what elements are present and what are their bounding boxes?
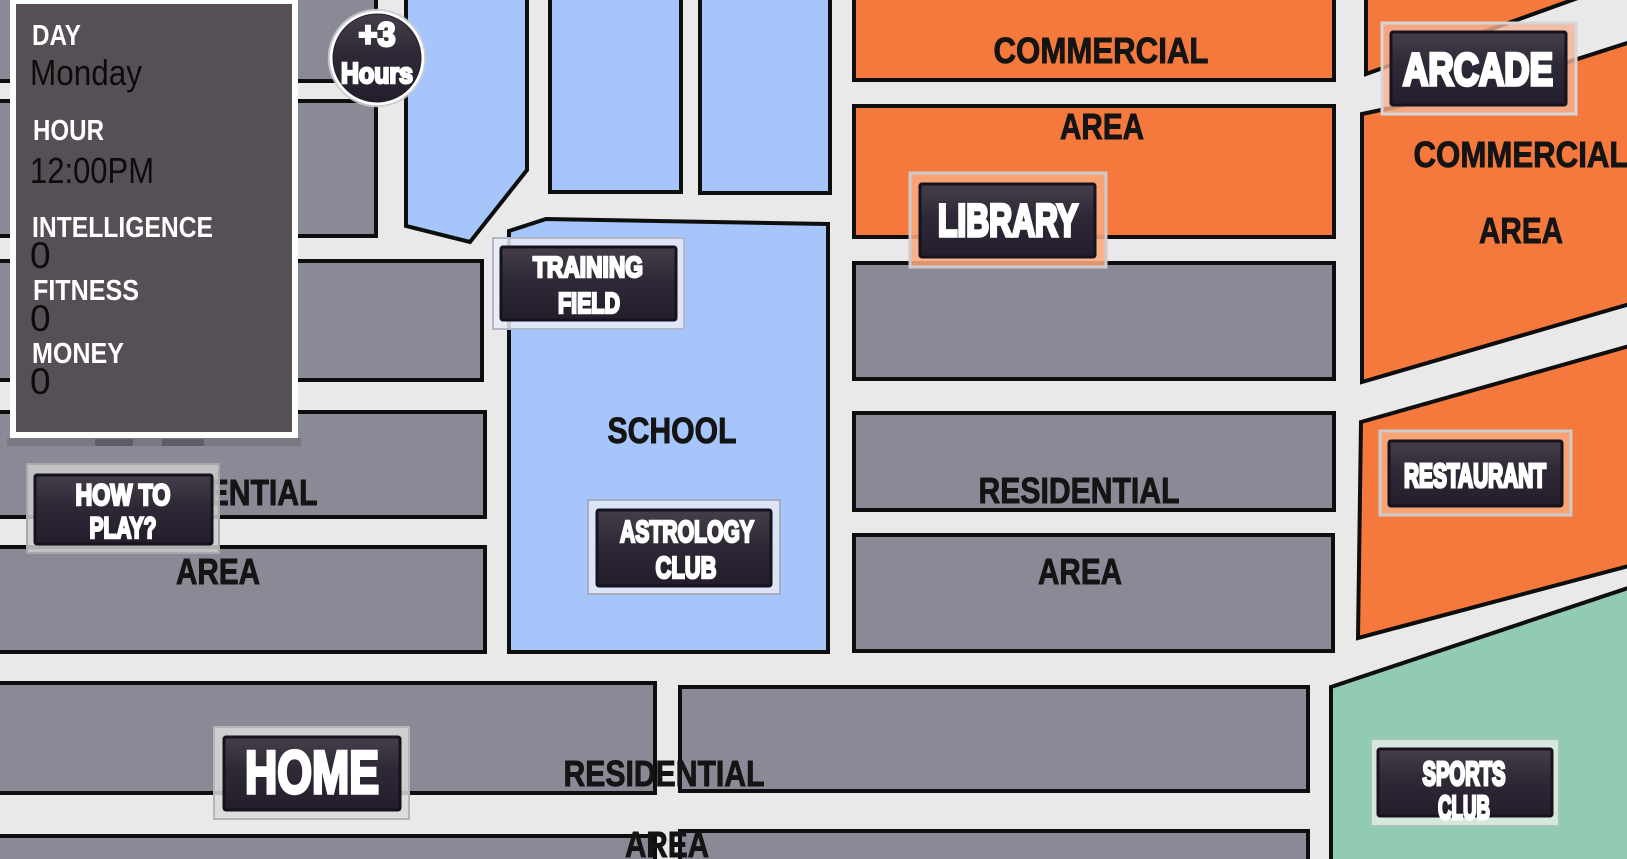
svg-text:CLUB: CLUB	[1438, 789, 1490, 826]
svg-text:+3: +3	[359, 16, 396, 54]
svg-text:COMMERCIAL: COMMERCIAL	[994, 30, 1209, 71]
svg-text:AREA: AREA	[625, 824, 709, 859]
svg-text:RESIDENTIAL: RESIDENTIAL	[564, 753, 765, 794]
svg-text:ASTROLOGY: ASTROLOGY	[620, 514, 754, 549]
svg-text:0: 0	[30, 298, 51, 339]
svg-text:0: 0	[30, 235, 51, 276]
svg-text:FIELD: FIELD	[558, 288, 620, 320]
svg-text:Monday: Monday	[30, 52, 142, 93]
svg-text:HOW TO: HOW TO	[76, 479, 171, 512]
svg-text:HOUR: HOUR	[33, 115, 104, 147]
svg-text:SCHOOL: SCHOOL	[608, 410, 737, 451]
svg-text:AREA: AREA	[1479, 210, 1563, 251]
svg-text:LIBRARY: LIBRARY	[938, 195, 1078, 246]
svg-text:AREA: AREA	[1060, 106, 1144, 147]
svg-text:INTELLIGENCE: INTELLIGENCE	[32, 212, 213, 244]
svg-text:RESTAURANT: RESTAURANT	[1404, 457, 1546, 494]
svg-text:COMMERCIAL: COMMERCIAL	[1414, 134, 1627, 175]
svg-text:CLUB: CLUB	[656, 550, 717, 585]
svg-text:ARCADE: ARCADE	[1403, 44, 1553, 95]
svg-text:SPORTS: SPORTS	[1423, 755, 1506, 792]
svg-text:AREA: AREA	[176, 551, 260, 592]
svg-text:0: 0	[30, 361, 51, 402]
svg-text:PLAY?: PLAY?	[90, 512, 157, 545]
svg-text:Hours: Hours	[341, 58, 413, 90]
svg-text:DAY: DAY	[32, 20, 81, 52]
svg-text:12:00PM: 12:00PM	[30, 150, 154, 191]
svg-text:RESIDENTIAL: RESIDENTIAL	[979, 470, 1180, 511]
svg-text:TRAINING: TRAINING	[533, 252, 643, 284]
svg-text:HOME: HOME	[245, 739, 379, 806]
svg-text:AREA: AREA	[1038, 551, 1122, 592]
